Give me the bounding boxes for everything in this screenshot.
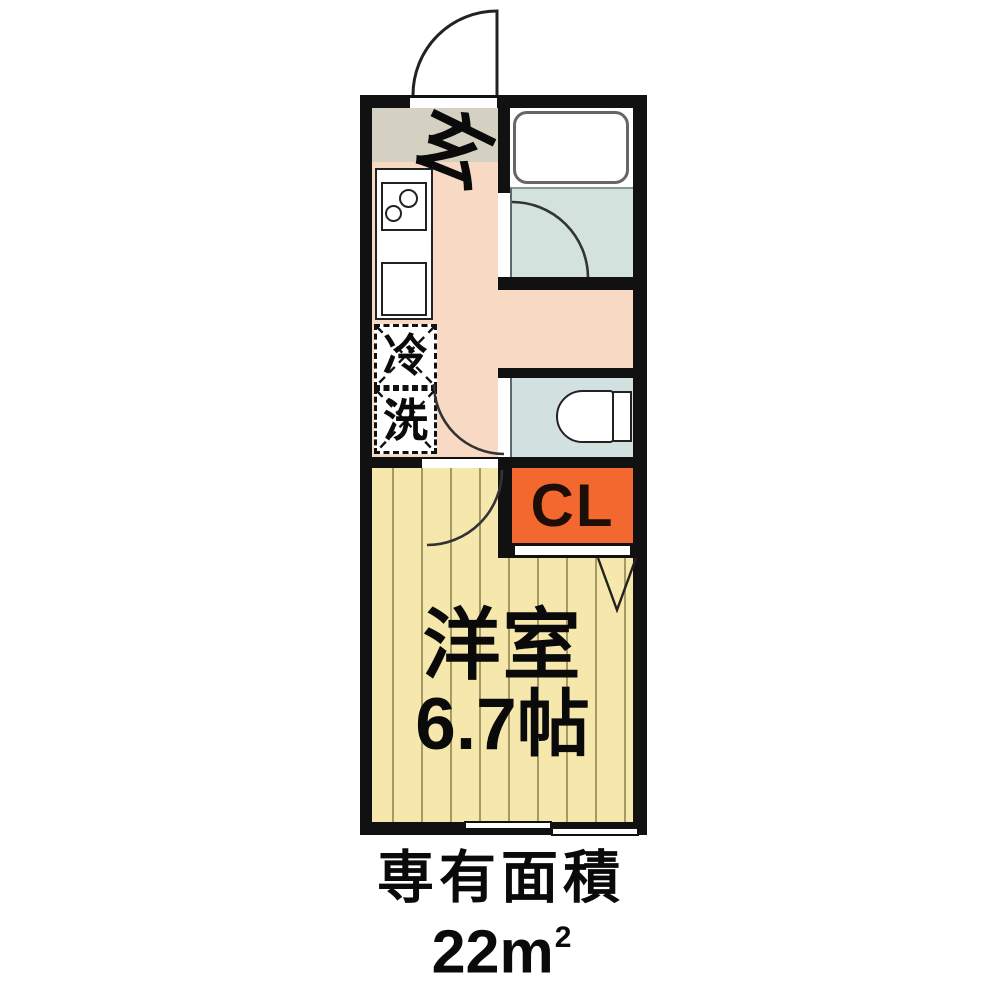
floorplan: CL 玄 冷 洗 洋室 6.7帖 専有面積 22m2 — [0, 0, 1001, 1000]
area-caption: 専有面積 22m2 — [306, 846, 696, 983]
window-pane-right — [551, 827, 639, 836]
fridge-label: 冷 — [374, 331, 437, 381]
room-size-label: 6.7帖 — [372, 686, 633, 764]
washer-label: 洗 — [374, 396, 437, 446]
toilet-bowl-icon — [556, 390, 614, 443]
toilet-door-opening — [498, 378, 510, 457]
closet-left-wall — [498, 457, 512, 558]
area-exponent: 2 — [555, 921, 572, 954]
stove-burner-large-icon — [399, 189, 418, 208]
kitchen-sink-icon — [381, 262, 427, 316]
area-caption-value: 22m2 — [306, 910, 696, 983]
closet: CL — [512, 468, 633, 543]
bathroom-floor — [510, 187, 633, 277]
stove-burner-small-icon — [385, 205, 402, 222]
area-value: 22m — [432, 917, 554, 985]
bathroom-door-opening — [498, 193, 510, 277]
toilet-tank-icon — [612, 391, 632, 442]
kitchen-hall-floor-right — [437, 290, 633, 368]
window-pane-left — [464, 821, 552, 830]
toilet-top-wall — [498, 368, 647, 378]
room-door-opening — [422, 459, 500, 468]
bathroom-bottom-wall — [498, 277, 647, 290]
area-caption-title: 専有面積 — [306, 846, 696, 910]
closet-label: CL — [531, 471, 615, 540]
entrance-door-arc — [413, 11, 497, 95]
room-name-label: 洋室 — [372, 605, 633, 685]
bathtub-icon — [513, 111, 629, 184]
closet-door — [512, 543, 633, 558]
